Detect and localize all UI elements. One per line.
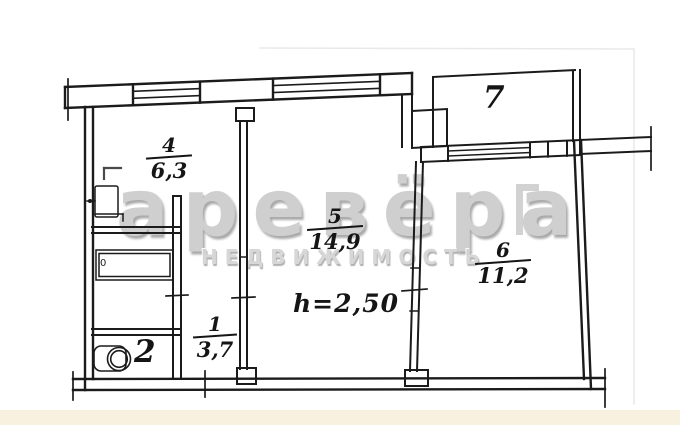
bathtub-icon — [96, 250, 173, 280]
room-number: 4 — [138, 135, 200, 155]
room-area: 6,3 — [138, 160, 200, 181]
window-bedroom — [448, 148, 530, 152]
label-room-living: 5 14,9 — [300, 206, 370, 252]
bathtub-drain-mark: 0 — [100, 258, 106, 269]
toilet-icon — [94, 346, 131, 371]
label-room-kitchen: 4 6,3 — [138, 135, 200, 181]
floor-plan-scan: аревёра НЕДВИЖИМОСТЬ — [0, 0, 680, 425]
room-number: 1 — [187, 314, 243, 334]
label-room-bedroom: 6 11,2 — [468, 240, 538, 286]
label-room-wc: 2 — [134, 337, 156, 368]
room-area: 14,9 — [300, 231, 370, 252]
window-kitchen — [133, 89, 200, 99]
bedroom-north-wall — [421, 137, 651, 162]
room-area: 3,7 — [187, 339, 243, 360]
room-number: 6 — [468, 240, 538, 260]
partition-east — [402, 162, 428, 386]
label-room-balcony: 7 — [483, 83, 505, 114]
label-room-hall: 1 3,7 — [187, 314, 243, 360]
window-living-room — [273, 81, 380, 92]
room-area: 11,2 — [468, 265, 538, 286]
door-tick-bathroom — [166, 295, 188, 296]
door-tick-bedroom — [402, 289, 427, 291]
kitchen-vent-mark — [104, 168, 121, 179]
room-number: 5 — [300, 206, 370, 226]
ceiling-height-label: h=2,50 — [293, 291, 399, 317]
door-tick-hall — [232, 297, 255, 298]
